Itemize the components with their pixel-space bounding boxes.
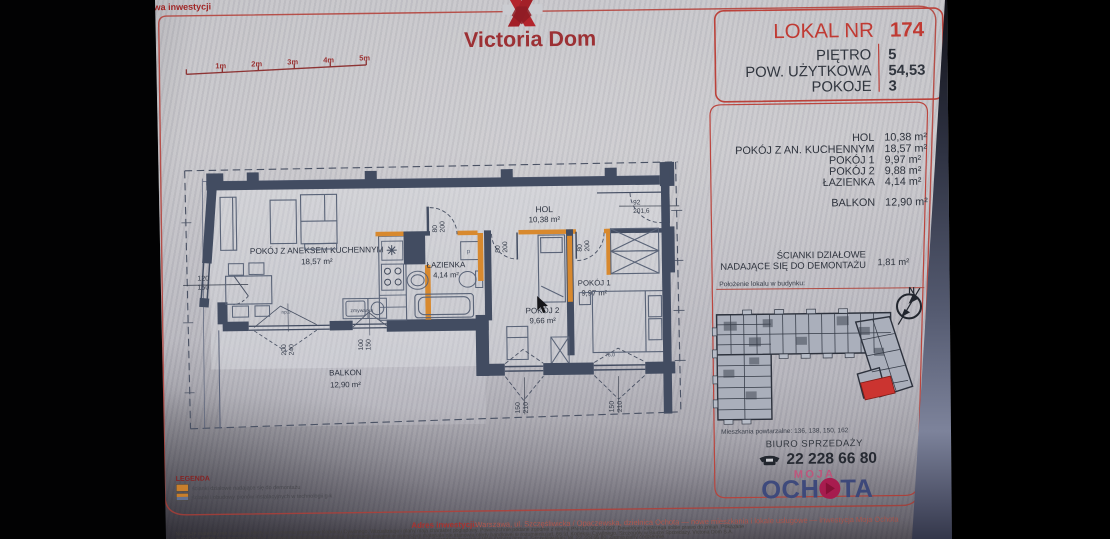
svg-text:HOL: HOL — [852, 132, 874, 144]
svg-text:5: 5 — [888, 47, 896, 63]
svg-text:PIĘTRO: PIĘTRO — [816, 47, 871, 64]
svg-text:200: 200 — [281, 344, 288, 356]
svg-text:12,90 m²: 12,90 m² — [885, 196, 928, 209]
svg-text:4m: 4m — [323, 55, 334, 64]
svg-text:150: 150 — [365, 339, 372, 351]
svg-text:BALKON: BALKON — [329, 368, 362, 377]
svg-text:92: 92 — [633, 199, 641, 206]
svg-text:5m: 5m — [359, 53, 370, 62]
svg-text:POKÓJ 1: POKÓJ 1 — [578, 278, 611, 287]
svg-text:200: 200 — [584, 240, 591, 252]
svg-text:POW. UŻYTKOWA: POW. UŻYTKOWA — [745, 61, 871, 81]
svg-text:POKOJE: POKOJE — [811, 79, 871, 96]
svg-text:10,38 m²: 10,38 m² — [528, 215, 560, 224]
svg-text:174: 174 — [890, 18, 925, 41]
svg-text:3m: 3m — [287, 57, 298, 66]
svg-text:80: 80 — [432, 225, 439, 233]
svg-text:ŁAZIENKA: ŁAZIENKA — [427, 260, 466, 270]
svg-text:4,14 m²: 4,14 m² — [885, 176, 922, 188]
svg-text:BALKON: BALKON — [831, 197, 875, 210]
svg-text:np.0: np.0 — [281, 309, 290, 314]
svg-text:200: 200 — [439, 221, 446, 233]
svg-text:BIURO SPRZEDAŻY: BIURO SPRZEDAŻY — [766, 438, 864, 450]
svg-text:TA: TA — [840, 475, 873, 503]
svg-text:1,81 m²: 1,81 m² — [877, 256, 909, 267]
svg-text:80: 80 — [577, 244, 584, 252]
svg-text:3: 3 — [889, 79, 897, 95]
svg-text:201,6: 201,6 — [633, 208, 650, 215]
svg-text:LOKAL NR: LOKAL NR — [773, 19, 874, 43]
svg-text:54,53: 54,53 — [888, 63, 925, 79]
svg-text:Mieszkania powtarzalne: 136, 1: Mieszkania powtarzalne: 136, 138, 150, 1… — [721, 427, 849, 436]
svg-text:ŁAZIENKA: ŁAZIENKA — [823, 176, 876, 189]
svg-text:Victoria Dom: Victoria Dom — [464, 26, 597, 52]
svg-text:HOL: HOL — [535, 204, 553, 214]
svg-text:150: 150 — [515, 402, 522, 414]
svg-text:NADAJĄCE SIĘ DO DEMONTAŻU: NADAJĄCE SIĘ DO DEMONTAŻU — [720, 259, 866, 272]
svg-text:1m: 1m — [215, 61, 226, 70]
svg-text:150: 150 — [609, 401, 616, 413]
svg-text:2m: 2m — [251, 59, 262, 68]
svg-text:80: 80 — [495, 245, 502, 253]
svg-text:100: 100 — [358, 339, 365, 351]
svg-text:12,90 m²: 12,90 m² — [330, 380, 361, 389]
svg-text:150: 150 — [197, 285, 209, 292]
svg-text:OCH: OCH — [761, 476, 820, 505]
svg-text:Położenie lokalu w budynku:: Położenie lokalu w budynku: — [719, 280, 805, 288]
svg-text:210: 210 — [617, 401, 624, 413]
svg-text:zmywarka: zmywarka — [350, 308, 373, 314]
svg-text:200: 200 — [502, 241, 509, 253]
svg-text:LEGENDA: LEGENDA — [176, 476, 210, 483]
svg-text:POKÓJ Z ANEKSEM KUCHENNYM: POKÓJ Z ANEKSEM KUCHENNYM — [250, 244, 384, 256]
svg-text:22 228 66 80: 22 228 66 80 — [786, 450, 877, 468]
svg-text:ścianki i obudowy pionów insta: ścianki i obudowy pionów instalacyjnych … — [192, 493, 333, 501]
svg-text:18,57 m²: 18,57 m² — [301, 257, 333, 266]
svg-text:210: 210 — [523, 402, 530, 414]
svg-text:wa inwestycji: wa inwestycji — [152, 1, 211, 12]
svg-text:120: 120 — [197, 276, 209, 283]
svg-text:ścianki działowe nadające się: ścianki działowe nadające się do demonta… — [192, 485, 301, 492]
svg-text:240: 240 — [288, 344, 295, 356]
svg-text:9,66 m²: 9,66 m² — [529, 316, 556, 325]
svg-text:4,14 m²: 4,14 m² — [433, 270, 459, 279]
